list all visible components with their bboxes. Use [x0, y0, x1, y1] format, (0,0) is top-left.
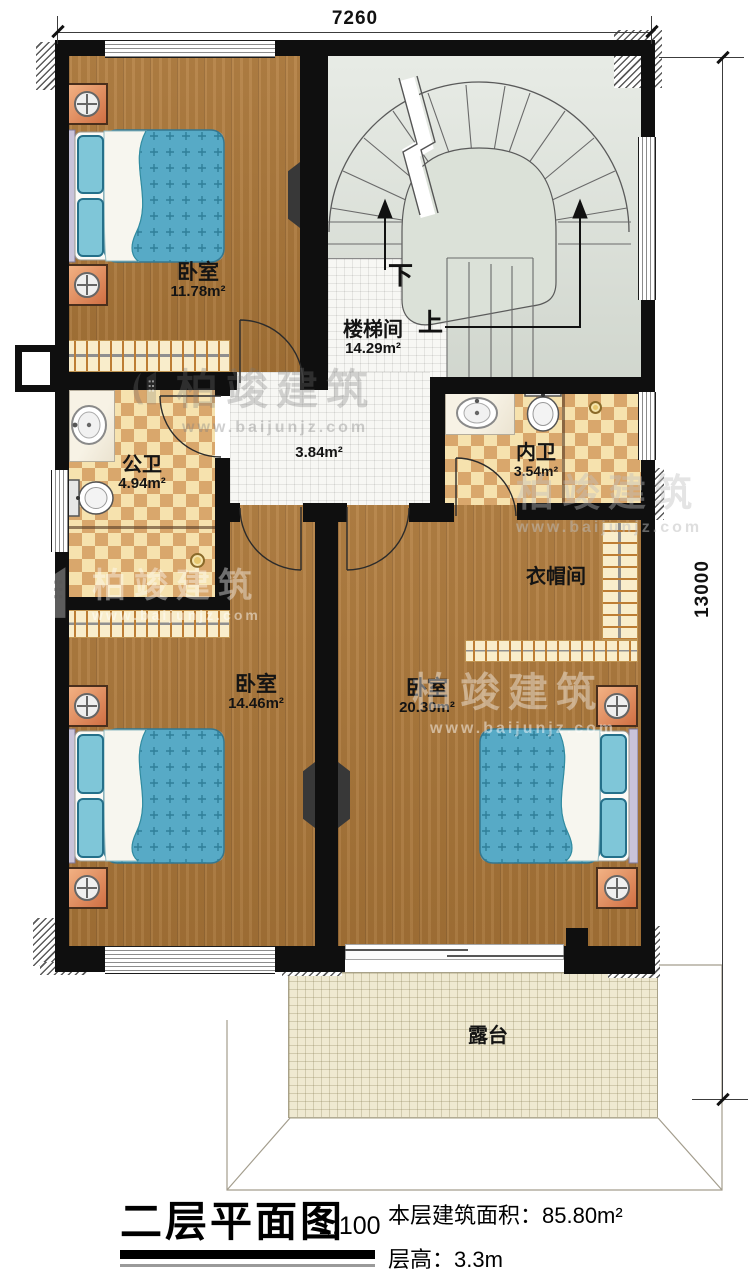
annotation-layer — [0, 0, 750, 1270]
room-area: 11.78m² — [153, 284, 243, 300]
dimension-line-top — [58, 32, 652, 33]
room-label-bath-public: 公卫 4.94m² — [97, 455, 187, 492]
room-area: 14.46m² — [211, 696, 301, 712]
door-arc — [240, 507, 301, 570]
door-arc — [240, 320, 303, 383]
floor-height-text: 层高：3.3m — [388, 1242, 503, 1270]
room-name: 卧室 — [211, 674, 301, 696]
room-name: 卧室 — [153, 262, 243, 284]
room-label-hall-area: 3.84m² — [289, 445, 349, 461]
floor-plan-canvas: 卧室 11.78m² 楼梯间 14.29m² 3.84m² 公卫 4.94m² … — [0, 0, 750, 1270]
room-label-cloakroom: 衣帽间 — [506, 567, 606, 588]
title-underline-thin — [120, 1264, 375, 1267]
eave-outline — [227, 965, 722, 1190]
room-label-bath-inner: 内卫 3.54m² — [491, 443, 581, 479]
room-label-stairwell: 楼梯间 14.29m² — [327, 320, 419, 357]
room-area: 14.29m² — [327, 341, 419, 357]
plan-title: 二层平面图 — [120, 1188, 345, 1249]
title-underline — [120, 1250, 375, 1259]
floor-area-text: 本层建筑面积：85.80m² — [388, 1198, 623, 1230]
stair-up-label: 上 — [418, 303, 443, 339]
room-name: 楼梯间 — [327, 320, 419, 341]
dimension-extension — [659, 57, 744, 58]
room-area: 3.54m² — [491, 464, 581, 479]
room-name: 卧室 — [382, 678, 472, 700]
door-arc — [347, 507, 409, 570]
room-label-bedroom-left: 卧室 14.46m² — [211, 674, 301, 712]
room-name: 内卫 — [491, 443, 581, 464]
room-name: 公卫 — [97, 455, 187, 476]
dimension-width-label: 7260 — [300, 8, 410, 30]
sliding-door-leaves — [345, 950, 564, 956]
room-area: 20.30m² — [382, 700, 472, 716]
dimension-height-label: 13000 — [692, 539, 714, 639]
room-label-terrace: 露台 — [443, 1026, 533, 1047]
dimension-line-right — [722, 58, 723, 1100]
room-label-bedroom-top: 卧室 11.78m² — [153, 262, 243, 300]
room-area: 4.94m² — [97, 476, 187, 492]
stair-down-label: 下 — [388, 256, 413, 292]
room-label-bedroom-right: 卧室 20.30m² — [382, 678, 472, 716]
door-arc — [160, 396, 221, 457]
plan-scale: 1:100 — [318, 1212, 381, 1241]
